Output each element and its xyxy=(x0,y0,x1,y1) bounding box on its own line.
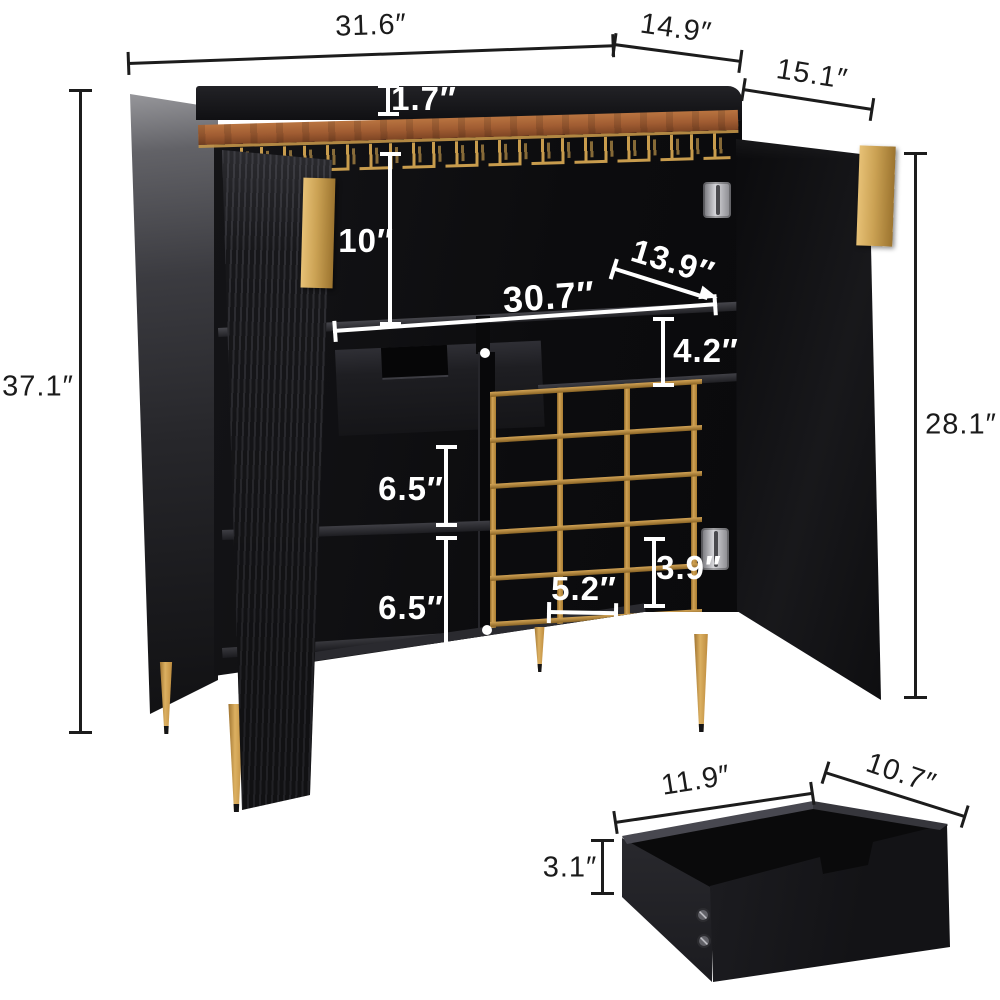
junction-dot-top xyxy=(480,348,490,358)
dim-line-overall-height xyxy=(79,90,82,733)
dim-label-upper-shelf: 6.5″ xyxy=(378,470,444,508)
dim-line-right-gap xyxy=(661,317,665,387)
cabinet-side-panel xyxy=(128,90,220,716)
dim-label-overall-height: 37.1″ xyxy=(2,371,74,404)
dim-line-door-height xyxy=(914,153,917,698)
dim-label-interior-width: 30.7″ xyxy=(501,273,596,321)
dim-label-right-gap: 4.2″ xyxy=(673,332,739,370)
dim-line-backsplash-height xyxy=(386,84,390,116)
product-dimension-diagram: 31.6″ 14.9″ 15.1″ 37.1″ 28.1″ 11.9″ 10.7… xyxy=(0,0,1000,1000)
dim-line-top-width xyxy=(128,44,614,65)
dim-line-drawer-height xyxy=(601,840,604,894)
wine-rack-bar xyxy=(490,517,702,535)
dim-line-side-depth xyxy=(743,88,873,111)
dim-label-cube-width: 5.2″ xyxy=(551,570,617,608)
dim-label-lower-shelf: 6.5″ xyxy=(378,589,444,627)
wine-rack-bar xyxy=(490,471,702,489)
drawer-screw xyxy=(698,910,708,920)
dim-label-top-compartment: 10″ xyxy=(338,222,394,260)
drawer-handle-notch xyxy=(381,345,448,380)
dim-label-backsplash-height: 1.7″ xyxy=(391,80,457,118)
junction-dot-bottom xyxy=(482,625,492,635)
dim-label-door-height: 28.1″ xyxy=(925,409,997,442)
dim-label-cube-height: 3.9″ xyxy=(656,549,722,587)
dim-line-upper-shelf xyxy=(444,445,448,527)
cabinet-leg-front-right xyxy=(692,634,710,732)
dim-label-drawer-height: 3.1″ xyxy=(543,852,598,885)
wine-rack-bar xyxy=(490,425,702,443)
wine-rack-bar xyxy=(624,383,630,619)
pull-out-drawer-illustration xyxy=(590,790,970,995)
cabinet-leg-rear-right xyxy=(533,627,546,672)
dim-line-lower-shelf xyxy=(444,536,448,658)
right-door-gold-handle xyxy=(856,145,895,246)
dim-label-side-depth: 15.1″ xyxy=(774,53,850,97)
door-hinge-top xyxy=(703,182,731,218)
wine-rack-bar xyxy=(490,392,496,628)
left-door-gold-handle xyxy=(301,178,336,289)
drawer-screw xyxy=(699,936,709,946)
dim-label-top-depth: 14.9″ xyxy=(638,8,714,51)
dim-label-top-width: 31.6″ xyxy=(335,8,408,43)
